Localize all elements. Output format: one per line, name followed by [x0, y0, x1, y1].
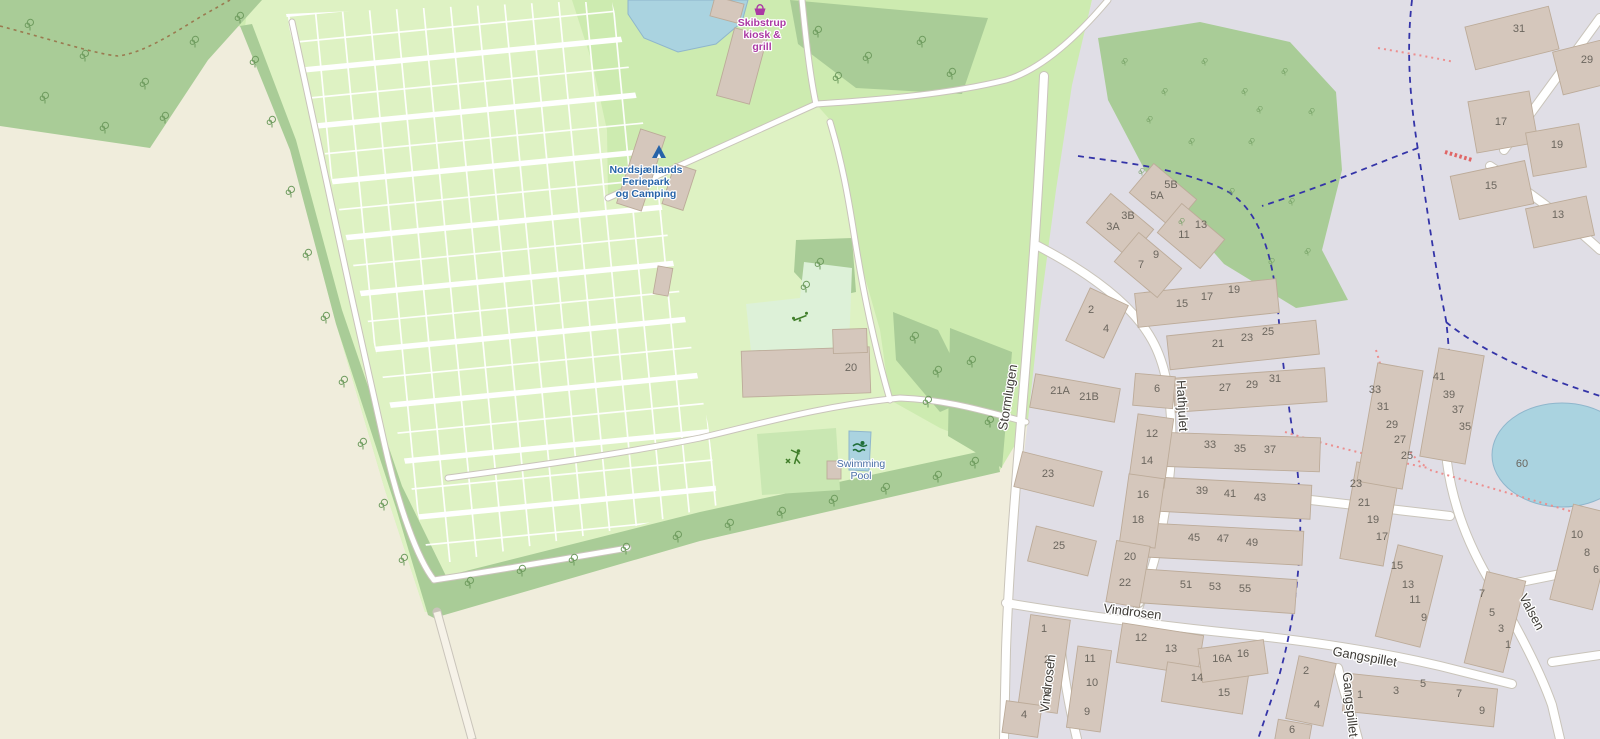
house-number: 39 [1196, 485, 1208, 497]
house-number: 31 [1377, 401, 1389, 413]
house-number: 21 [1212, 338, 1224, 350]
house-number: 6 [1593, 564, 1599, 576]
house-number: 2 [1303, 665, 1309, 677]
house-number: 13 [1552, 209, 1564, 221]
house-number: 15 [1218, 687, 1230, 699]
house-number: 4 [1314, 699, 1320, 711]
house-number: 45 [1188, 532, 1200, 544]
house-number: 16A [1212, 653, 1232, 665]
house-number: 17 [1201, 291, 1213, 303]
house-number: 27 [1219, 382, 1231, 394]
house-number: 15 [1391, 560, 1403, 572]
house-number: 23 [1042, 468, 1054, 480]
house-number: 3 [1498, 623, 1504, 635]
house-number: 17 [1495, 116, 1507, 128]
house-number: 5B [1164, 179, 1177, 191]
house-number: 6 [1154, 383, 1160, 395]
house-number: 9 [1153, 249, 1159, 261]
house-number: 13 [1165, 643, 1177, 655]
house-number: 5 [1489, 607, 1495, 619]
house-number: 19 [1367, 514, 1379, 526]
house-number: 2 [1088, 304, 1094, 316]
house-number: 29 [1386, 419, 1398, 431]
kiosk-label-line: kiosk & [743, 29, 781, 41]
pool-label-line: Swimming [837, 458, 886, 470]
map: StormlugenHathjuletVindrosenVindrosenGan… [0, 0, 1600, 739]
house-number: 29 [1246, 379, 1258, 391]
house-number: 15 [1176, 298, 1188, 310]
house-number: 37 [1452, 404, 1464, 416]
house-number: 31 [1269, 373, 1281, 385]
kiosk-label-line: Skibstrup [738, 17, 786, 29]
house-number: 19 [1551, 139, 1563, 151]
campsite-label-line: Feriepark [622, 176, 669, 188]
house-number: 37 [1264, 444, 1276, 456]
house-number: 22 [1119, 577, 1131, 589]
house-number: 3A [1106, 221, 1120, 233]
house-number: 11 [1178, 229, 1189, 241]
house-number: 2 [1044, 654, 1050, 666]
house-number: 15 [1485, 180, 1497, 192]
house-number: 5 [1420, 678, 1426, 690]
house-number: 5A [1150, 190, 1164, 202]
house-number: 14 [1141, 455, 1153, 467]
house-number: 8 [1584, 547, 1590, 559]
map-canvas[interactable]: StormlugenHathjuletVindrosenVindrosenGan… [0, 0, 1600, 739]
house-number: 49 [1246, 537, 1258, 549]
campsite-label-line: og Camping [616, 188, 677, 200]
house-number: 21 [1358, 497, 1370, 509]
house-number: 33 [1369, 384, 1381, 396]
house-number: 9 [1084, 706, 1090, 718]
house-number: 3B [1121, 210, 1134, 222]
building [833, 328, 868, 353]
house-number: 41 [1224, 488, 1236, 500]
house-number: 16 [1137, 489, 1149, 501]
house-number: 55 [1239, 583, 1251, 595]
house-number: 7 [1456, 688, 1462, 700]
house-number: 16 [1237, 648, 1249, 660]
pool-label-line: Pool [850, 470, 871, 482]
house-number: 3 [1393, 685, 1399, 697]
house-number: 10 [1086, 677, 1098, 689]
house-number: 39 [1443, 389, 1455, 401]
house-number: 13 [1195, 219, 1207, 231]
house-number: 4 [1021, 709, 1027, 721]
house-number: 7 [1479, 588, 1485, 600]
house-number: 21A [1050, 385, 1070, 397]
house-number: 1 [1357, 689, 1363, 701]
house-number: 1 [1041, 623, 1047, 635]
house-number: 25 [1262, 326, 1274, 338]
house-number: 10 [1571, 529, 1583, 541]
house-number: 47 [1217, 533, 1229, 545]
house-number: 25 [1053, 540, 1065, 552]
house-number: 20 [845, 362, 857, 374]
house-number: 12 [1135, 632, 1147, 644]
house-number: 25 [1401, 450, 1413, 462]
house-number: 1 [1505, 639, 1511, 651]
house-number: 11 [1084, 653, 1095, 665]
house-number: 35 [1234, 443, 1246, 455]
house-number: 27 [1394, 434, 1406, 446]
house-number: 14 [1191, 672, 1203, 684]
house-number: 7 [1138, 259, 1144, 271]
house-number: 35 [1459, 421, 1471, 433]
campsite-label-line: Nordsjællands [610, 164, 683, 176]
house-number: 13 [1402, 579, 1414, 591]
house-number: 18 [1132, 514, 1144, 526]
house-number: 19 [1228, 284, 1240, 296]
house-number: 51 [1180, 579, 1192, 591]
house-number: 23 [1350, 478, 1362, 490]
house-number: 33 [1204, 439, 1216, 451]
house-number: 60 [1516, 458, 1528, 470]
house-number: 20 [1124, 551, 1136, 563]
house-number: 53 [1209, 581, 1221, 593]
house-number: 11 [1409, 594, 1420, 606]
house-number: 6 [1289, 724, 1295, 736]
house-number: 31 [1513, 23, 1525, 35]
house-number: 43 [1254, 492, 1266, 504]
street-name-label: Hathjulet [1174, 380, 1192, 432]
house-number: 4 [1103, 323, 1109, 335]
house-number: 17 [1376, 531, 1388, 543]
kiosk-label-line: grill [752, 41, 771, 53]
house-number: 23 [1241, 332, 1253, 344]
house-number: 3 [1044, 686, 1050, 698]
house-number: 21B [1079, 391, 1099, 403]
house-number: 9 [1479, 705, 1485, 717]
house-number: 29 [1581, 54, 1593, 66]
house-number: 41 [1433, 371, 1445, 383]
house-number: 9 [1421, 612, 1427, 624]
house-number: 12 [1146, 428, 1158, 440]
